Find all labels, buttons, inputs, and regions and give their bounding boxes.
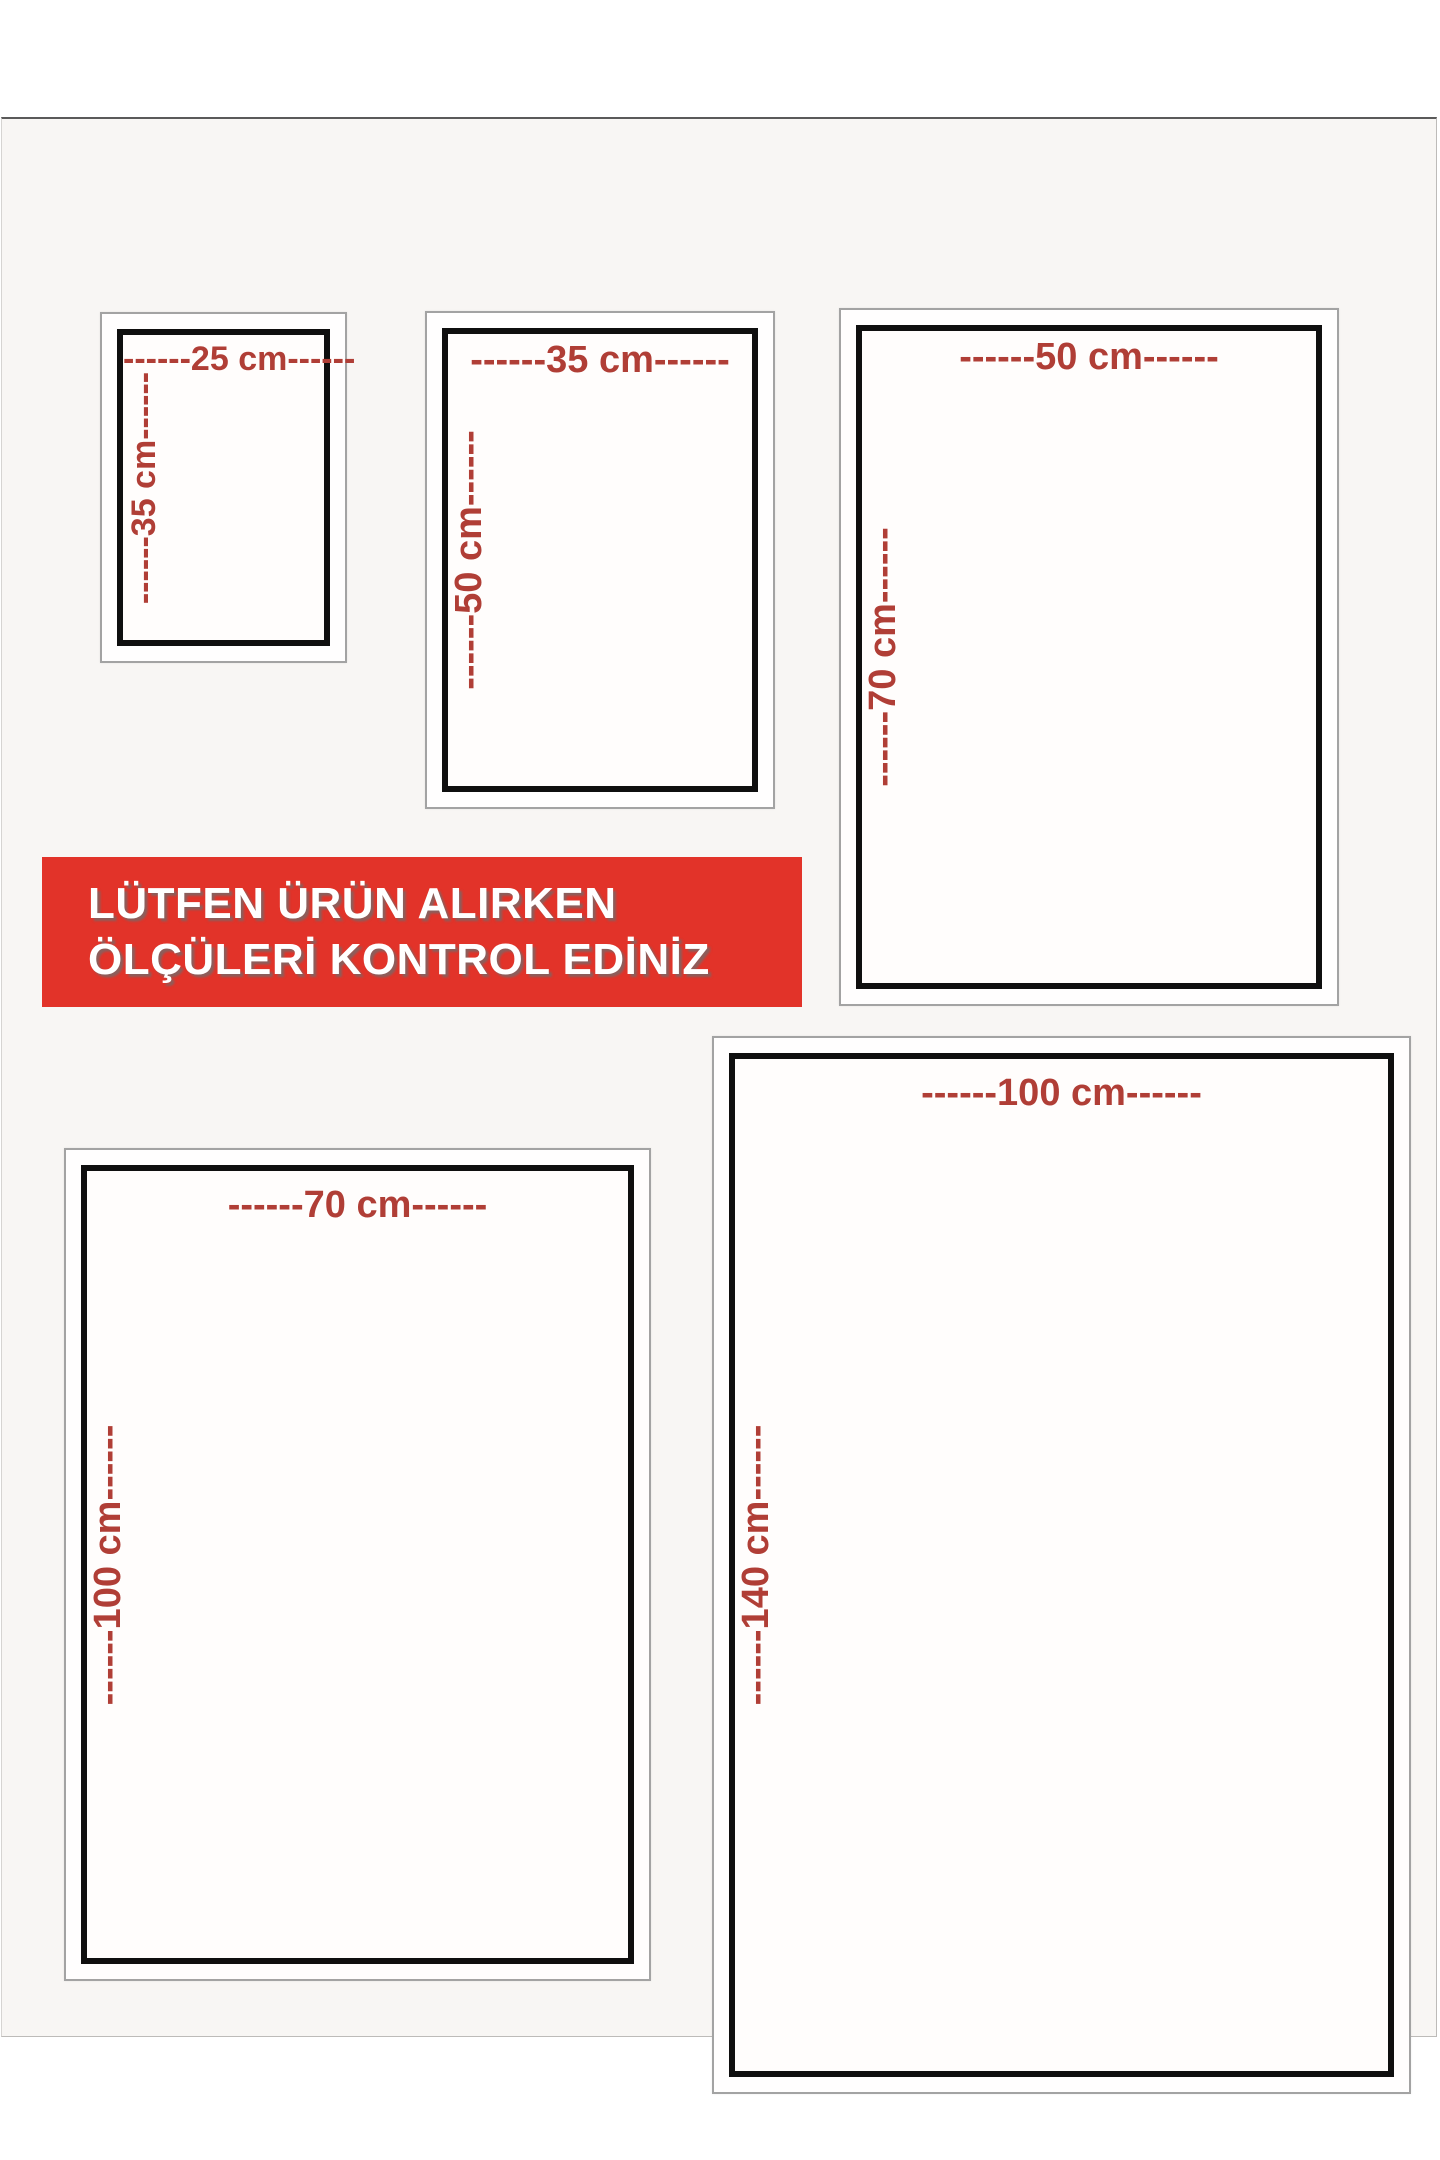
warning-banner-line2: ÖLÇÜLERİ KONTROL EDİNİZ [88, 934, 802, 986]
height-dimension-label: ------70 cm------ [864, 527, 902, 787]
width-dimension-label: ------35 cm------ [448, 340, 752, 382]
width-dimension-label: ------50 cm------ [862, 337, 1316, 379]
size-frame-100x140: ------100 cm------ ------140 cm------ [712, 1036, 1411, 2094]
size-frame-35x50: ------35 cm------ ------50 cm------ [425, 311, 775, 809]
size-frame-25x35: ------25 cm------ ------35 cm------ [100, 312, 347, 663]
photo-content-area: ------25 cm------ ------35 cm------ ----… [1, 117, 1437, 2037]
size-frame-70x100: ------70 cm------ ------100 cm------ [64, 1148, 651, 1981]
height-dimension-label: ------140 cm------ [737, 1425, 775, 1706]
warning-banner: LÜTFEN ÜRÜN ALIRKEN ÖLÇÜLERİ KONTROL EDİ… [42, 857, 802, 1007]
height-dimension-label: ------35 cm------ [127, 371, 161, 603]
frame-inner-border: ------25 cm------ ------35 cm------ [117, 329, 330, 646]
warning-banner-line1: LÜTFEN ÜRÜN ALIRKEN [88, 878, 802, 930]
width-dimension-label: ------100 cm------ [735, 1073, 1388, 1115]
frame-inner-border: ------35 cm------ ------50 cm------ [442, 328, 758, 792]
frame-inner-border: ------100 cm------ ------140 cm------ [729, 1053, 1394, 2077]
frame-inner-border: ------70 cm------ ------100 cm------ [81, 1165, 634, 1964]
height-dimension-label: ------100 cm------ [89, 1424, 127, 1705]
size-guide-page: { "banner": { "line1": "LÜTFEN ÜRÜN ALIR… [0, 0, 1440, 2160]
width-dimension-label: ------70 cm------ [87, 1185, 628, 1227]
frame-inner-border: ------50 cm------ ------70 cm------ [856, 325, 1322, 989]
size-frame-50x70: ------50 cm------ ------70 cm------ [839, 308, 1339, 1006]
height-dimension-label: ------50 cm------ [450, 430, 488, 690]
